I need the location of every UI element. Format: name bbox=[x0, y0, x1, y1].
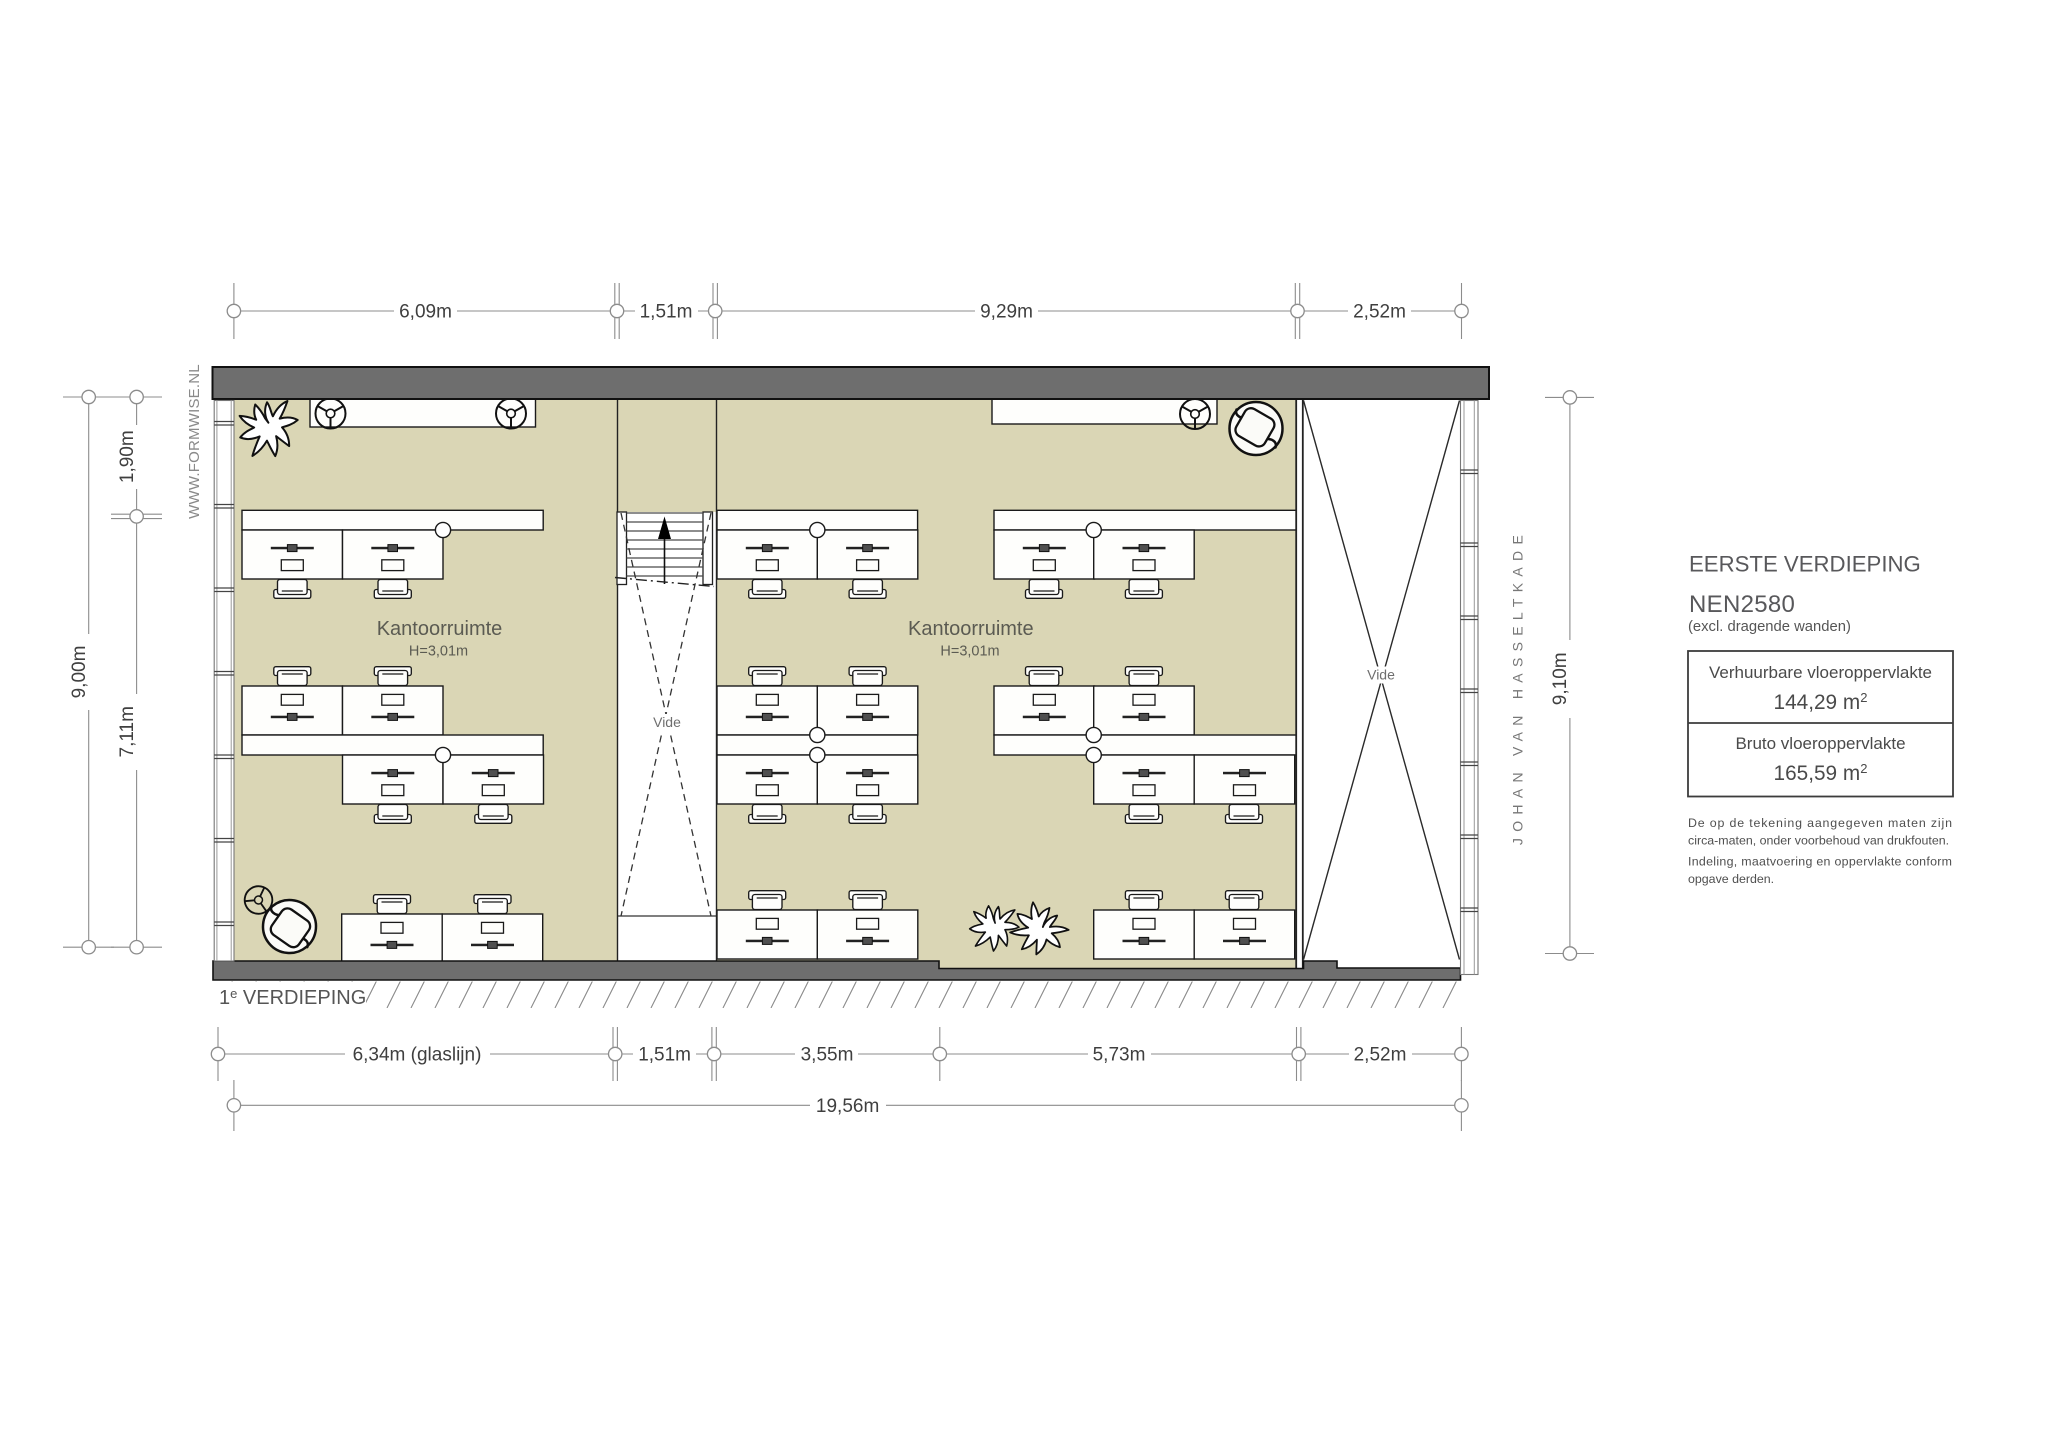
svg-text:2,52m: 2,52m bbox=[1353, 302, 1406, 323]
svg-text:9,10m: 9,10m bbox=[1550, 652, 1571, 705]
svg-text:Kantoorruimte: Kantoorruimte bbox=[908, 618, 1034, 640]
svg-text:1,51m: 1,51m bbox=[638, 1045, 691, 1066]
svg-text:1,90m: 1,90m bbox=[117, 430, 138, 483]
svg-text:2,52m: 2,52m bbox=[1354, 1045, 1407, 1066]
svg-text:opgave derden.: opgave derden. bbox=[1688, 872, 1774, 886]
svg-text:165,59 m2: 165,59 m2 bbox=[1774, 761, 1868, 785]
svg-text:5,73m: 5,73m bbox=[1093, 1045, 1146, 1066]
svg-text:144,29 m2: 144,29 m2 bbox=[1774, 690, 1868, 714]
svg-text:Bruto vloeroppervlakte: Bruto vloeroppervlakte bbox=[1735, 734, 1905, 753]
svg-text:circa-maten, onder voorbehoud: circa-maten, onder voorbehoud van drukfo… bbox=[1688, 834, 1949, 848]
svg-text:H=3,01m: H=3,01m bbox=[409, 644, 468, 660]
svg-text:6,34m (glaslijn): 6,34m (glaslijn) bbox=[353, 1045, 482, 1066]
svg-text:9,29m: 9,29m bbox=[980, 302, 1033, 323]
svg-text:19,56m: 19,56m bbox=[816, 1096, 879, 1117]
svg-text:Indeling, maatvoering en opper: Indeling, maatvoering en oppervlakte con… bbox=[1688, 855, 1952, 869]
svg-text:Kantoorruimte: Kantoorruimte bbox=[377, 618, 503, 640]
svg-text:WWW.FORMWISE.NL: WWW.FORMWISE.NL bbox=[186, 364, 203, 519]
svg-text:JOHAN VAN HASSELTKADE: JOHAN VAN HASSELTKADE bbox=[1510, 529, 1526, 845]
svg-text:H=3,01m: H=3,01m bbox=[940, 644, 999, 660]
svg-text:(excl. dragende wanden): (excl. dragende wanden) bbox=[1688, 619, 1851, 635]
svg-text:1e VERDIEPING: 1e VERDIEPING bbox=[219, 986, 366, 1009]
svg-text:NEN2580: NEN2580 bbox=[1689, 591, 1795, 618]
svg-text:7,11m: 7,11m bbox=[117, 706, 138, 757]
svg-text:Verhuurbare vloeroppervlakte: Verhuurbare vloeroppervlakte bbox=[1709, 663, 1932, 682]
svg-text:1,51m: 1,51m bbox=[640, 302, 693, 323]
svg-text:9,00m: 9,00m bbox=[69, 646, 90, 699]
svg-text:Vide: Vide bbox=[653, 714, 681, 730]
svg-text:Vide: Vide bbox=[1367, 667, 1395, 683]
svg-text:3,55m: 3,55m bbox=[801, 1045, 854, 1066]
svg-text:EERSTE VERDIEPING: EERSTE VERDIEPING bbox=[1689, 552, 1921, 577]
svg-text:6,09m: 6,09m bbox=[399, 302, 452, 323]
svg-text:De op de tekening aangegeven m: De op de tekening aangegeven maten zijn bbox=[1688, 816, 1952, 830]
